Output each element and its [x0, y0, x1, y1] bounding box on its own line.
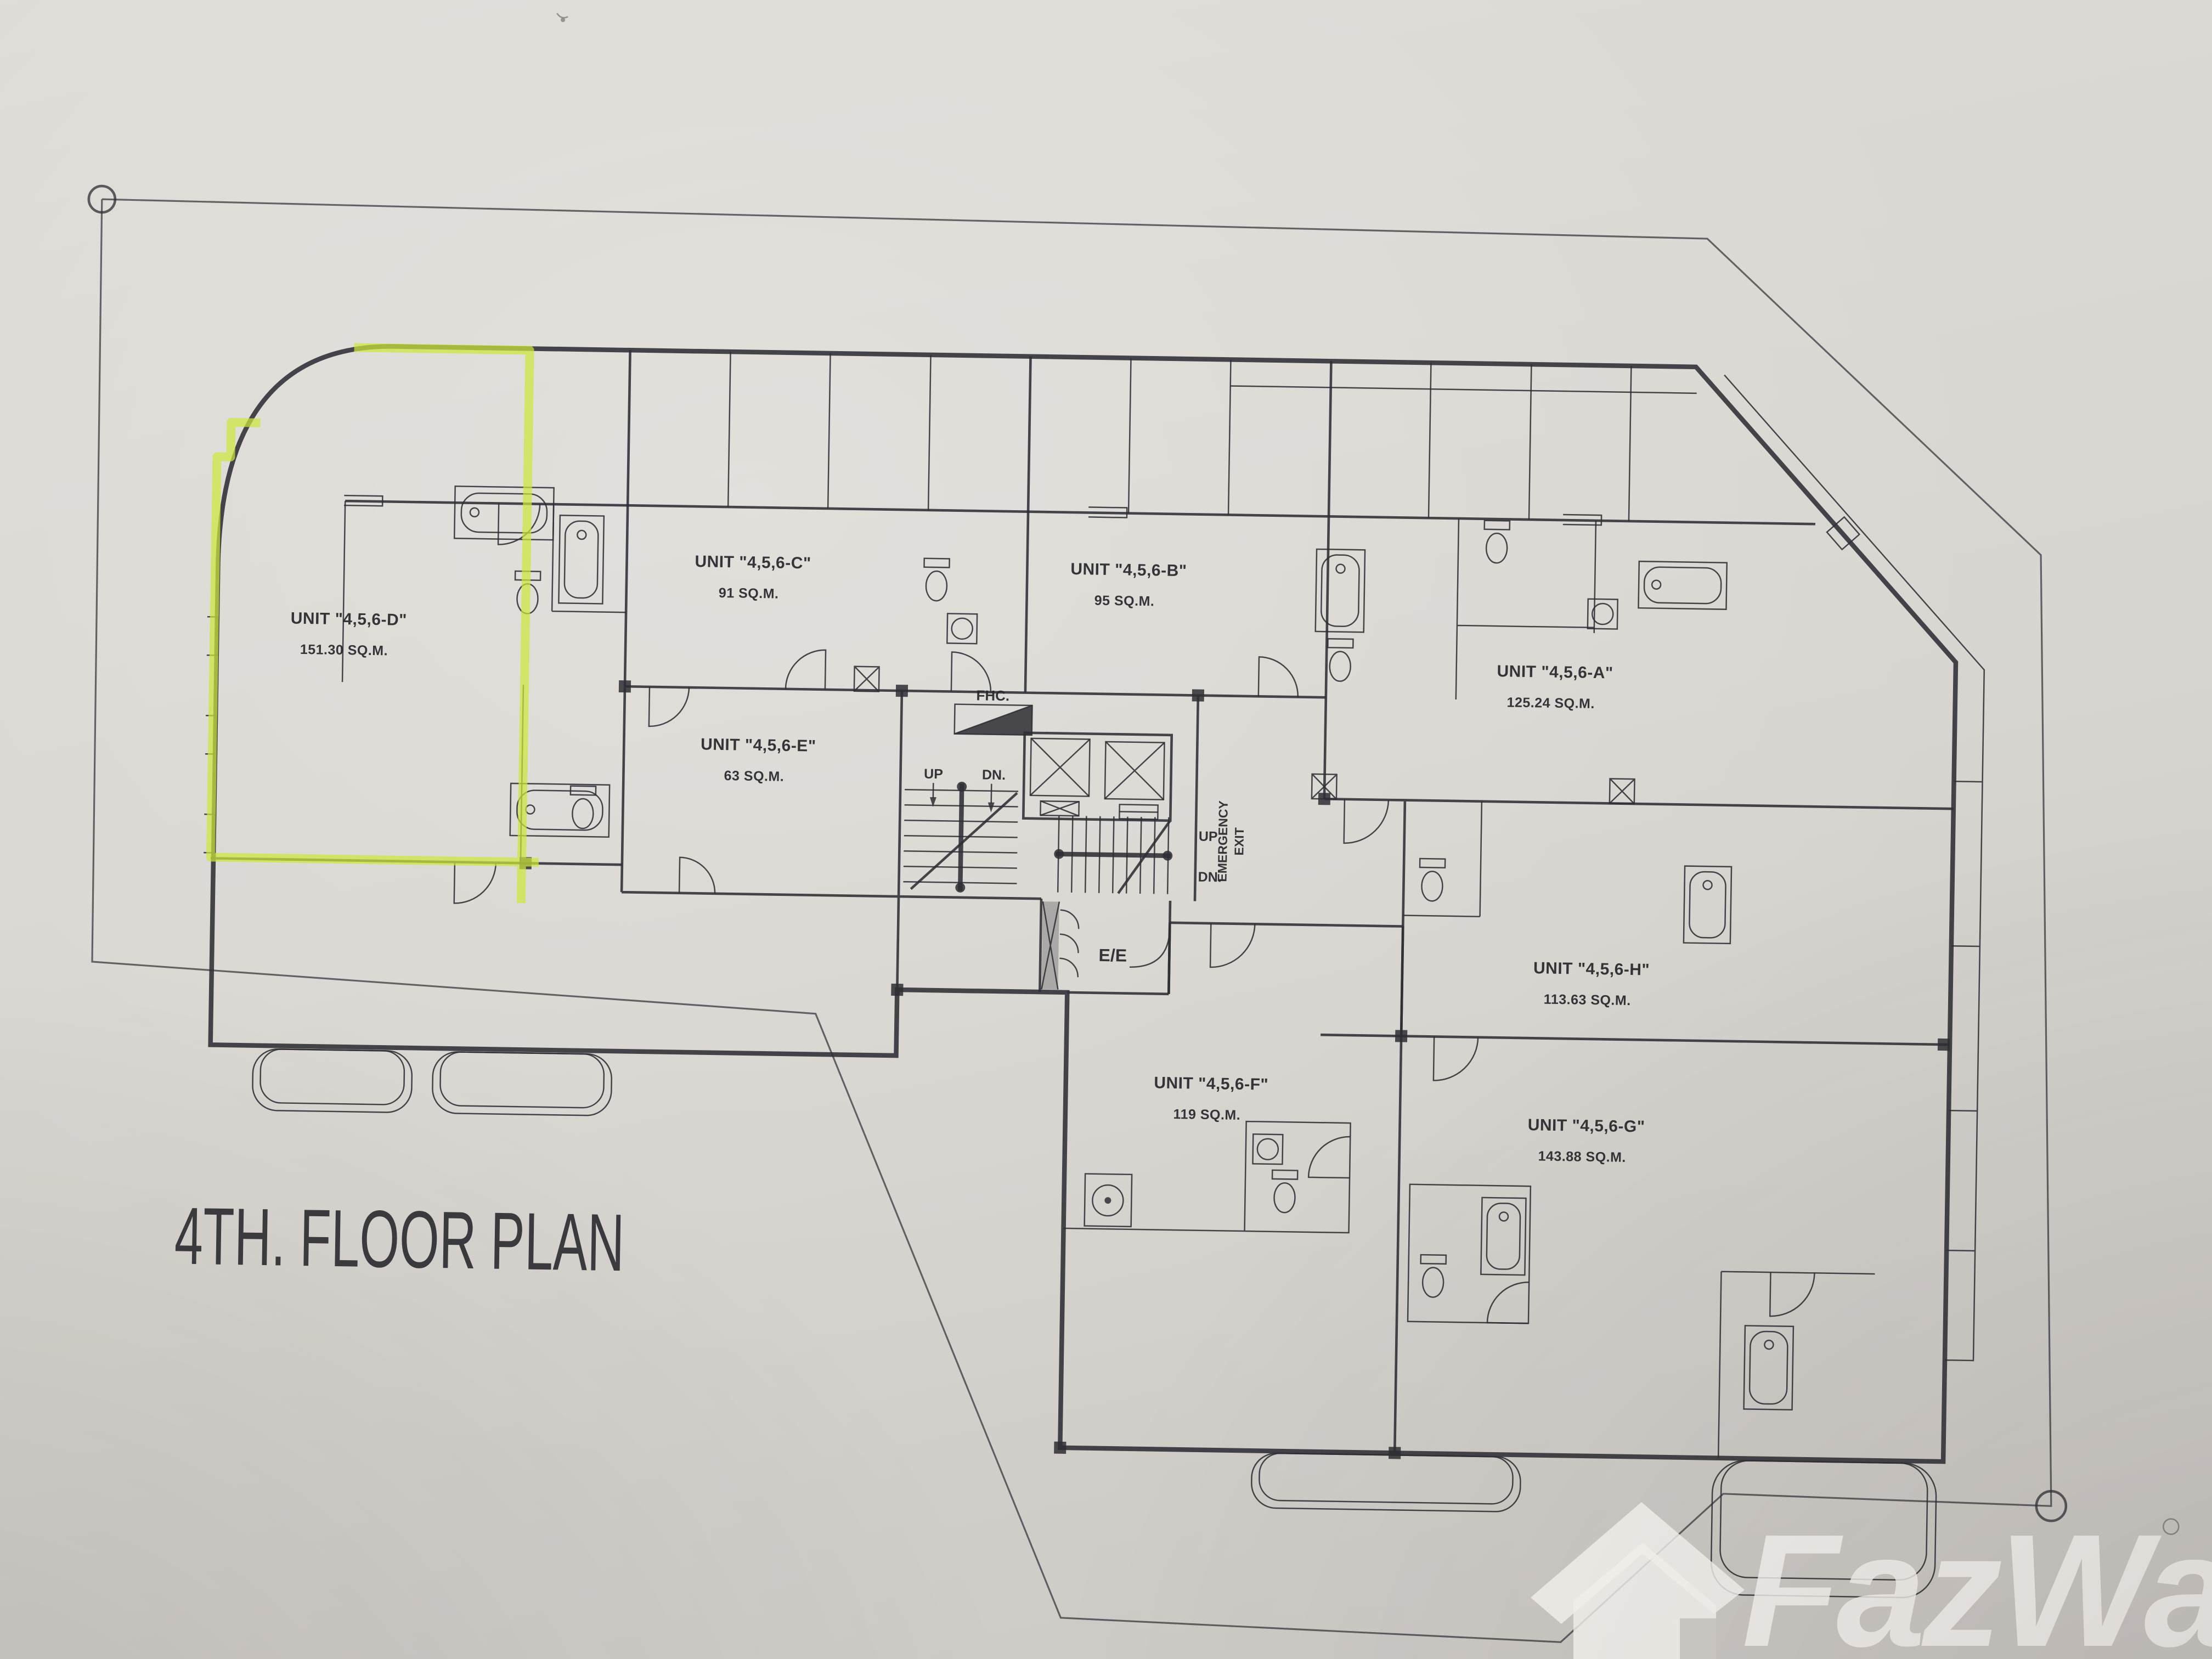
unit-a-area: 125.24 SQ.M. [1506, 695, 1595, 712]
fire-hose-cabinet [955, 704, 1032, 735]
unit-d-area: 151.30 SQ.M. [300, 642, 388, 659]
stair-left-up-label: UP [924, 766, 943, 782]
unit-e-name: UNIT "4,5,6-E" [701, 735, 816, 755]
unit-h-area: 113.63 SQ.M. [1544, 992, 1631, 1008]
property-boundary [66, 186, 2086, 1650]
door-swings [448, 503, 1826, 1328]
unit-c-label: UNIT "4,5,6-C" 91 SQ.M. [694, 552, 811, 602]
stair-right-up-label: UP [1199, 829, 1218, 845]
unit-b-label: UNIT "4,5,6-B" 95 SQ.M. [1070, 560, 1187, 610]
unit-b-area: 95 SQ.M. [1094, 593, 1155, 610]
unit-h-label: UNIT "4,5,6-H" 113.63 SQ.M. [1533, 959, 1650, 1008]
unit-a-name: UNIT "4,5,6-A" [1497, 662, 1613, 682]
unit-g-area: 143.88 SQ.M. [1538, 1148, 1626, 1165]
emergency-exit-label: EMERGENCY EXIT [1215, 800, 1247, 882]
unit-e-label: UNIT "4,5,6-E" 63 SQ.M. [700, 735, 816, 785]
emergency-exit-line1: EMERGENCY [1215, 800, 1231, 882]
unit-d-label: UNIT "4,5,6-D" 151.30 SQ.M. [290, 610, 407, 659]
unit-g-name: UNIT "4,5,6-G" [1527, 1116, 1645, 1136]
unit-d-name: UNIT "4,5,6-D" [291, 610, 408, 629]
washer [1085, 1173, 1132, 1226]
plan-sheet: UNIT "4,5,6-D" 151.30 SQ.M. UNIT "4,5,6-… [66, 6, 2202, 1652]
unit-e-area: 63 SQ.M. [724, 768, 784, 785]
unit-c-area: 91 SQ.M. [719, 585, 779, 602]
emergency-exit-line2: EXIT [1232, 827, 1246, 856]
fazwaz-wordmark: FazWaz [1742, 1501, 2212, 1659]
floor-plan-drawing: UNIT "4,5,6-D" 151.30 SQ.M. UNIT "4,5,6-… [0, 0, 2212, 1659]
unit-h-name: UNIT "4,5,6-H" [1533, 959, 1650, 979]
unit-f-label: UNIT "4,5,6-F" 119 SQ.M. [1153, 1074, 1268, 1123]
unit-a-label: UNIT "4,5,6-A" 125.24 SQ.M. [1496, 662, 1613, 712]
stair-left-dn-label: DN. [982, 767, 1006, 783]
balconies [245, 1049, 1943, 1598]
unit-f-area: 119 SQ.M. [1173, 1107, 1240, 1123]
unit-c-name: UNIT "4,5,6-C" [695, 552, 811, 572]
unit-f-name: UNIT "4,5,6-F" [1154, 1074, 1268, 1093]
fazwaz-house-icon [1531, 1502, 1745, 1659]
ee-room-label: E/E [1098, 945, 1127, 966]
stair-left [903, 781, 1018, 893]
unit-b-name: UNIT "4,5,6-B" [1070, 560, 1187, 580]
fazwaz-watermark: FazWaz [1531, 1501, 2212, 1659]
page-title: 4TH. FLOOR PLAN [174, 1190, 625, 1288]
fhc-label: FHC. [976, 687, 1009, 704]
toilets [504, 505, 1510, 1298]
elevator-shafts [1023, 733, 1171, 821]
unit-g-label: UNIT "4,5,6-G" 143.88 SQ.M. [1527, 1116, 1645, 1165]
stair-right [1053, 816, 1173, 894]
